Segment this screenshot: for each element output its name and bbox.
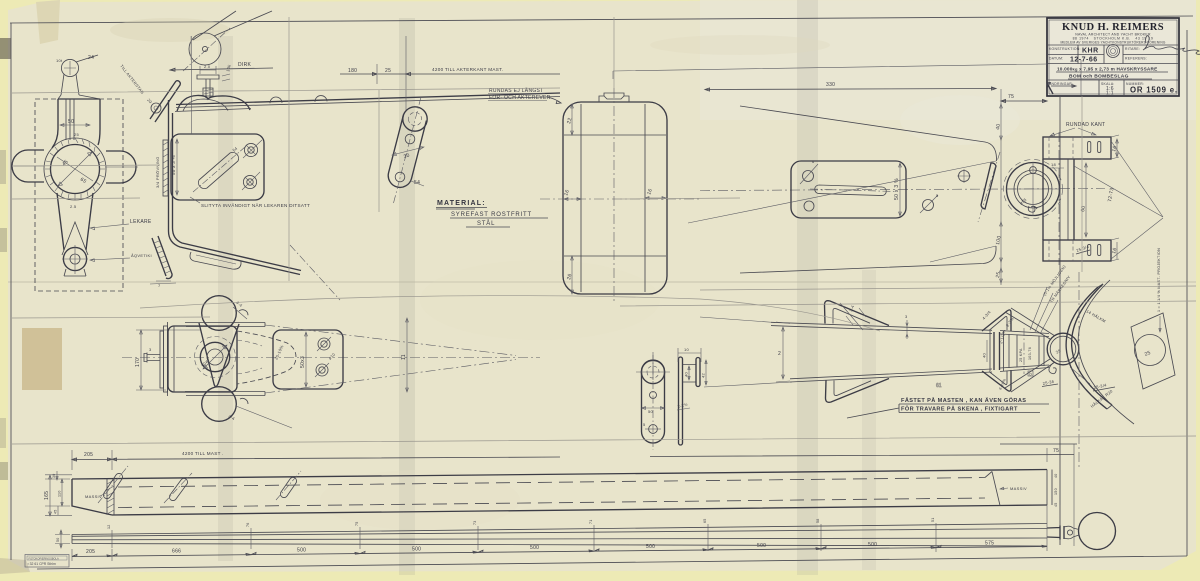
svg-text:30: 30 xyxy=(52,473,56,478)
svg-text:75: 75 xyxy=(1008,94,1014,100)
svg-text:58: 58 xyxy=(816,518,820,523)
svg-text:40: 40 xyxy=(1054,473,1058,478)
svg-text:LEKARE: LEKARE xyxy=(130,219,152,225)
svg-text:42: 42 xyxy=(701,372,706,378)
svg-text:54: 54 xyxy=(414,180,420,186)
svg-text:666: 666 xyxy=(172,549,181,555)
svg-text:50: 50 xyxy=(56,537,60,542)
svg-text:500: 500 xyxy=(757,543,766,549)
svg-text:75: 75 xyxy=(355,521,359,526)
svg-text:MASSIV: MASSIV xyxy=(85,494,102,499)
svg-text:KHR: KHR xyxy=(1082,48,1099,55)
svg-text:61: 61 xyxy=(936,383,942,389)
svg-text:500: 500 xyxy=(530,545,539,551)
svg-text:RUNDAD KANT: RUNDAD KANT xyxy=(1066,122,1105,128)
svg-text:4200 TILL AKTERKANT MAST.: 4200 TILL AKTERKANT MAST. xyxy=(432,67,503,72)
svg-text:60: 60 xyxy=(1080,205,1087,212)
svg-text:KNUD H. REIMERS: KNUD H. REIMERS xyxy=(1062,22,1164,33)
svg-text:REFERENS:: REFERENS: xyxy=(1125,57,1147,61)
svg-text:3/4 PRÖVNING: 3/4 PRÖVNING xyxy=(155,156,160,188)
svg-text:MEDLEM AV SVERIGES YACHTKONSTR: MEDLEM AV SVERIGES YACHTKONSTRUKTÖRERS F… xyxy=(1060,41,1165,45)
svg-text:40: 40 xyxy=(995,123,1002,130)
svg-text:330: 330 xyxy=(826,82,835,88)
svg-text:25: 25 xyxy=(995,271,1002,278)
svg-text:50: 50 xyxy=(648,409,654,414)
svg-text:170: 170 xyxy=(135,358,141,367)
svg-text:STÅL: STÅL xyxy=(477,220,495,227)
svg-text:50 x 3 %: 50 x 3 % xyxy=(171,155,176,175)
svg-text:76: 76 xyxy=(246,522,250,527)
svg-text:24: 24 xyxy=(88,55,94,61)
svg-text:2.0: 2.0 xyxy=(204,64,211,69)
svg-text:DIRK: DIRK xyxy=(238,62,252,68)
svg-text:2: 2 xyxy=(778,351,781,357)
svg-text:180: 180 xyxy=(348,68,357,74)
svg-text:575: 575 xyxy=(985,541,994,547)
svg-text:110: 110 xyxy=(58,490,62,497)
svg-text:MATERIAL:: MATERIAL: xyxy=(437,200,486,207)
svg-text:500: 500 xyxy=(646,544,655,550)
svg-text:O: O xyxy=(1029,373,1032,377)
svg-text:FOTOKOPIERINGSBOLA: FOTOKOPIERINGSBOLA xyxy=(29,556,59,560)
svg-text:25: 25 xyxy=(385,68,391,74)
svg-text:65: 65 xyxy=(703,518,707,523)
svg-text:12-7-66: 12-7-66 xyxy=(1070,57,1098,64)
svg-text:500: 500 xyxy=(297,548,306,554)
svg-text:MASSIV: MASSIV xyxy=(1010,486,1027,491)
svg-text:50x3: 50x3 xyxy=(300,356,306,368)
svg-text:▪ 32 61 CPR Sthlm: ▪ 32 61 CPR Sthlm xyxy=(28,562,57,566)
svg-text:FÖR- OCH AKTEREVER: FÖR- OCH AKTEREVER xyxy=(489,94,551,101)
svg-text:2.5: 2.5 xyxy=(70,204,77,209)
svg-text:SLITYTA INVÄNDIGT NÄR LEKAR: SLITYTA INVÄNDIGT NÄR LEKAREN DITSATT xyxy=(201,202,310,208)
svg-text:KONSTRUKTION:: KONSTRUKTION: xyxy=(1049,47,1081,51)
svg-text:FÄSTET PÅ MASTEN , KAN ÄVEN: FÄSTET PÅ MASTEN , KAN ÄVEN GÖRAS xyxy=(901,397,1026,404)
svg-text:165: 165 xyxy=(44,491,50,500)
svg-text:45: 45 xyxy=(54,509,58,514)
svg-text:103-76: 103-76 xyxy=(1028,347,1032,360)
svg-text:11: 11 xyxy=(401,354,407,360)
svg-text:ÄNDRINGAR:: ÄNDRINGAR: xyxy=(1049,82,1073,86)
svg-text:10: 10 xyxy=(684,347,690,352)
svg-text:10.000kg x 7,95 x 2,73 m HAVSK: 10.000kg x 7,95 x 2,73 m HAVSKRYSSARE xyxy=(1057,67,1157,72)
svg-text:10t: 10t xyxy=(56,58,63,63)
svg-text:SYREFAST ROSTFRITT: SYREFAST ROSTFRITT xyxy=(451,212,532,218)
svg-text:205: 205 xyxy=(84,452,93,458)
svg-text:50: 50 xyxy=(68,119,74,125)
svg-text:25 KPA: 25 KPA xyxy=(1019,348,1023,362)
svg-text:500: 500 xyxy=(868,542,877,548)
svg-text:DATUM:: DATUM: xyxy=(1049,57,1064,61)
svg-text:75: 75 xyxy=(1053,448,1059,454)
svg-text:1:1: 1:1 xyxy=(1106,91,1114,97)
svg-text:RITARE:: RITARE: xyxy=(1125,47,1140,51)
svg-text:4200 TILL MAST .: 4200 TILL MAST . xyxy=(182,451,224,456)
svg-text:18: 18 xyxy=(1051,162,1057,167)
svg-text:45: 45 xyxy=(1054,502,1058,507)
svg-text:1 = 1 1/4 % MAST- PROJEKTION: 1 = 1 1/4 % MAST- PROJEKTION xyxy=(1157,248,1161,312)
svg-text:40: 40 xyxy=(982,352,987,358)
svg-text:40: 40 xyxy=(684,371,689,377)
svg-text:ÅQVETIKI: ÅQVETIKI xyxy=(131,253,152,258)
svg-text:71: 71 xyxy=(589,519,593,524)
svg-text:500: 500 xyxy=(412,547,421,553)
svg-text:FÖR TRAVARE PÅ SKENA , FIXT: FÖR TRAVARE PÅ SKENA , FIXTIGART xyxy=(901,406,1018,413)
svg-text:150: 150 xyxy=(1054,488,1058,495)
svg-text:73: 73 xyxy=(473,520,477,525)
svg-text:205: 205 xyxy=(86,549,95,555)
svg-text:12: 12 xyxy=(107,524,111,529)
svg-text:OR 1509 e.: OR 1509 e. xyxy=(1130,86,1178,95)
svg-text:25: 25 xyxy=(74,132,80,137)
svg-text:51: 51 xyxy=(931,517,935,522)
